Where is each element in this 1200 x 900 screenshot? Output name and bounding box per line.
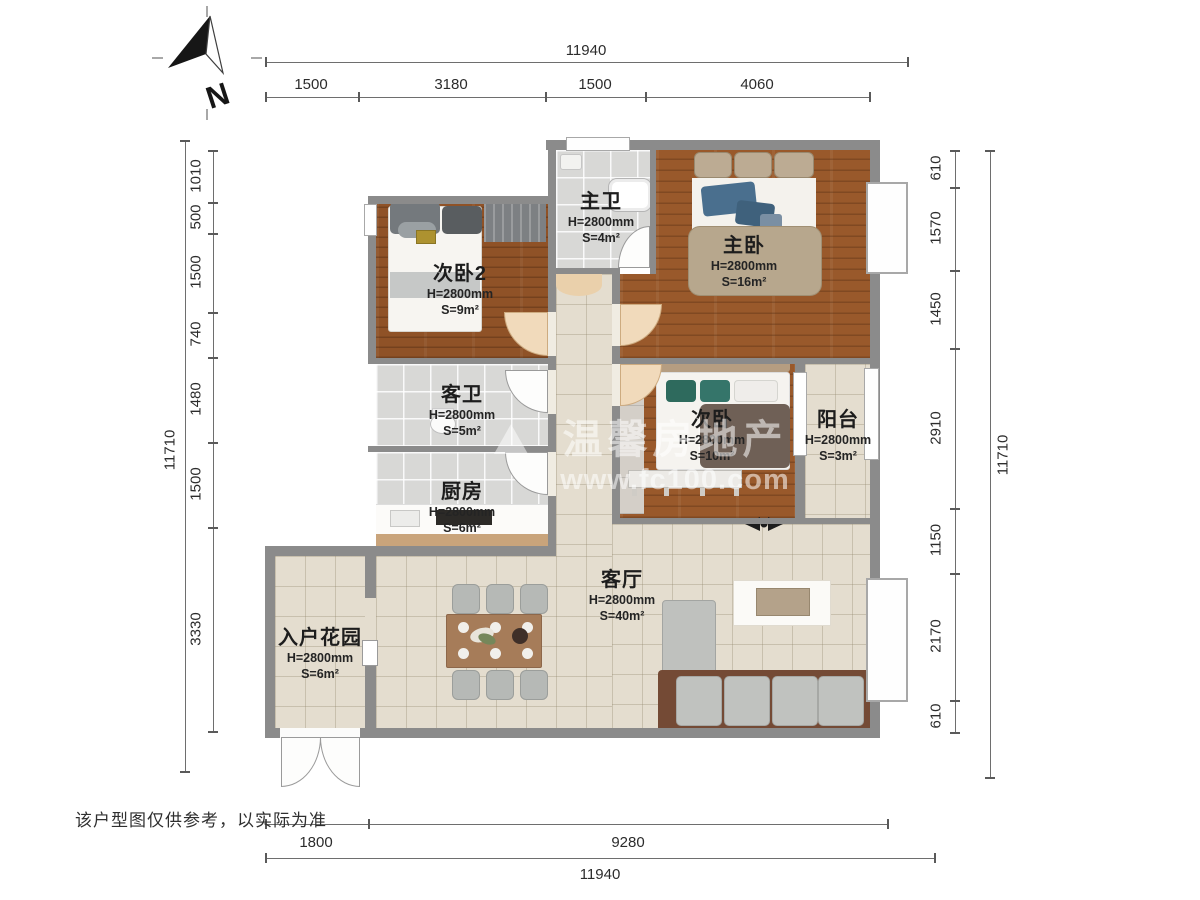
dim-left-seg: 1500 (188, 467, 205, 500)
dim-tick (208, 731, 218, 733)
bench-leg (632, 488, 637, 496)
window-masterbath-top (566, 137, 630, 151)
kitchen-cabinet-icon (376, 534, 548, 546)
dim-tick (358, 92, 360, 102)
wall-bedroom-bottom (612, 518, 870, 524)
disclaimer-text: 该户型图仅供参考，以实际为准 (75, 806, 327, 831)
sink-icon (560, 154, 582, 170)
dim-tick (180, 140, 190, 142)
dining-chair-icon (452, 584, 480, 614)
white-pillow-icon (734, 380, 778, 402)
dining-chair-icon (486, 584, 514, 614)
plate-icon (458, 648, 469, 659)
north-arrow-black-blade (168, 16, 210, 68)
window-bedroom2-left (364, 204, 377, 236)
window-bedroom-balcony (793, 372, 807, 456)
north-compass-icon: N (148, 2, 266, 124)
toilet-tank-icon (432, 408, 454, 416)
dining-chair-icon (520, 584, 548, 614)
dim-tick (208, 312, 218, 314)
master-pillow-icon (734, 152, 772, 178)
ceiling-fan-icon (744, 512, 784, 536)
dining-chair-icon (486, 670, 514, 700)
dim-line-bottom-segments (265, 824, 888, 825)
dim-right-seg: 2910 (928, 411, 945, 444)
dim-left-total: 11710 (162, 430, 179, 471)
dim-top-total: 11940 (566, 42, 607, 59)
floor-balcony (805, 364, 870, 518)
doormat (556, 274, 602, 296)
dim-left-seg: 3330 (188, 612, 205, 645)
entrance-door-leaf-right (320, 737, 360, 787)
dim-bottom-total: 11940 (580, 866, 621, 883)
dim-tick (869, 92, 871, 102)
dim-left-seg: 740 (188, 321, 205, 346)
dim-tick (208, 233, 218, 235)
plate-icon (458, 622, 469, 633)
dim-tick (934, 853, 936, 863)
master-blanket-icon (688, 226, 822, 296)
door-gap-guest-bath (548, 370, 556, 414)
bench-leg (700, 488, 705, 496)
bench-icon (628, 470, 742, 488)
dim-top-seg: 3180 (434, 76, 467, 93)
dim-tick (208, 202, 218, 204)
dim-tick (950, 573, 960, 575)
dim-right-seg: 610 (928, 703, 945, 728)
dim-tick (950, 508, 960, 510)
dim-tick (907, 57, 909, 67)
stove-icon (436, 510, 492, 525)
dining-chair-icon (452, 670, 480, 700)
dim-right-total: 11710 (995, 435, 1012, 476)
dim-tick (368, 819, 370, 829)
door-gap-bedroom2 (548, 312, 556, 356)
dim-tick (645, 92, 647, 102)
master-pillow-icon (774, 152, 814, 178)
wall-garden-top (265, 546, 376, 556)
dim-tick (180, 771, 190, 773)
dim-tick (208, 357, 218, 359)
master-pillow-icon (694, 152, 732, 178)
bed2-clothes-icon (442, 206, 482, 234)
dim-line-top-total (265, 62, 908, 63)
door-gap-bedroom (612, 364, 620, 406)
bench-leg (734, 488, 739, 496)
kitchen-sink-icon (390, 510, 420, 527)
dim-right-seg: 610 (928, 155, 945, 180)
dim-line-left-segments (213, 150, 214, 732)
dim-tick (208, 527, 218, 529)
dim-left-seg: 1010 (188, 159, 205, 192)
dim-top-seg: 1500 (294, 76, 327, 93)
bed-blanket-icon (700, 404, 790, 468)
north-arrow-white-blade (206, 16, 223, 73)
teal-pillow-icon (700, 380, 730, 402)
dim-left-seg: 1500 (188, 255, 205, 288)
floorplan-canvas: N (0, 0, 1200, 900)
dim-tick (950, 150, 960, 152)
bed2-box-icon (416, 230, 436, 244)
dim-right-seg: 1570 (928, 211, 945, 244)
wall-guestbath-top (368, 358, 556, 364)
dim-tick (950, 270, 960, 272)
wall-kitchen-bottom (368, 546, 556, 556)
dim-tick (985, 777, 995, 779)
dim-tick (950, 187, 960, 189)
dining-chair-icon (520, 670, 548, 700)
plate-icon (490, 648, 501, 659)
wall-masterbath-right (650, 150, 656, 274)
sofa-cushion-icon (676, 676, 722, 726)
dim-tick (265, 853, 267, 863)
dim-line-left-total (185, 140, 186, 772)
dim-bottom-seg: 9280 (611, 834, 644, 851)
dim-tick (985, 150, 995, 152)
bay-window-master-bedroom (866, 182, 908, 274)
door-gap-kitchen (548, 452, 556, 496)
bay-window-living (866, 578, 908, 702)
door-gap-master-bedroom (612, 304, 620, 346)
bowl-icon (512, 628, 528, 644)
dim-right-seg: 1150 (928, 524, 945, 556)
dim-tick (950, 732, 960, 734)
garden-door-leaf (362, 640, 378, 666)
bench-leg (664, 488, 669, 496)
wall-masterbath-stub (650, 268, 656, 274)
bathtub-icon (608, 178, 652, 212)
dim-tick (545, 92, 547, 102)
dim-tick (208, 442, 218, 444)
wardrobe2-icon (484, 202, 546, 242)
dim-top-seg: 4060 (740, 76, 773, 93)
dim-tick (208, 150, 218, 152)
dim-left-seg: 1480 (188, 382, 205, 415)
bed2-throw-icon (390, 272, 480, 298)
dim-right-seg: 2170 (928, 619, 945, 652)
sofa-cushion-icon (818, 676, 864, 726)
dim-line-right-segments (955, 150, 956, 733)
dim-tick (950, 700, 960, 702)
plate-icon (522, 648, 533, 659)
toilet-icon (430, 414, 456, 434)
dim-line-top-segments (265, 97, 870, 98)
teal-pillow-icon (666, 380, 696, 402)
sofa-chaise-icon (662, 600, 716, 678)
dim-tick (950, 348, 960, 350)
sofa-cushion-icon (772, 676, 818, 726)
floor-entry-garden (275, 556, 365, 728)
wall-bedroom2-top (368, 196, 554, 204)
wall-garden-left (265, 546, 275, 738)
entrance-door-leaf-left (281, 737, 321, 787)
dim-right-seg: 1450 (928, 292, 945, 325)
dim-top-seg: 1500 (578, 76, 611, 93)
dim-bottom-seg: 1800 (299, 834, 332, 851)
dim-tick (887, 819, 889, 829)
dim-left-seg: 500 (188, 204, 205, 229)
dim-line-bottom-total (265, 858, 935, 859)
floor-corridor (556, 274, 612, 556)
coffee-table-icon (756, 588, 810, 616)
dim-line-right-total (990, 150, 991, 778)
sofa-cushion-icon (724, 676, 770, 726)
window-balcony-right (864, 368, 879, 460)
